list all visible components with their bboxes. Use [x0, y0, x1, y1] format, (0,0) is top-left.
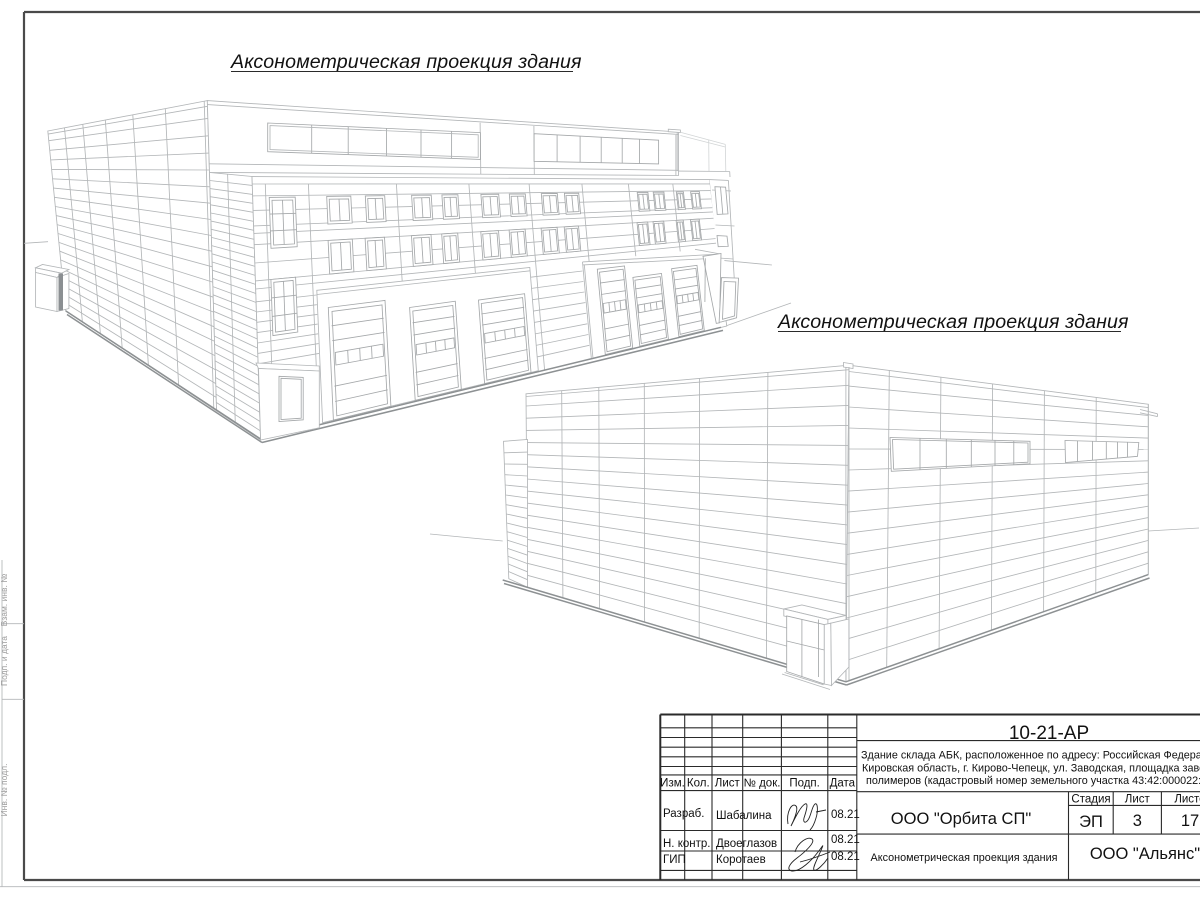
- svg-text:10-21-АР: 10-21-АР: [1009, 723, 1089, 744]
- svg-text:Аксонометрическая проекция зда: Аксонометрическая проекция здания: [871, 852, 1058, 864]
- svg-text:Разраб.: Разраб.: [663, 808, 704, 820]
- svg-text:08.21: 08.21: [831, 834, 860, 846]
- svg-text:Изм.: Изм.: [660, 778, 685, 790]
- svg-text:Стадия: Стадия: [1071, 794, 1110, 806]
- svg-text:08.21: 08.21: [831, 851, 860, 863]
- svg-text:Шабалина: Шабалина: [716, 810, 772, 822]
- svg-text:3: 3: [1133, 812, 1142, 830]
- svg-text:Дата: Дата: [830, 778, 856, 790]
- svg-text:Аксонометрическая проекция зда: Аксонометрическая проекция здания: [777, 311, 1129, 333]
- svg-text:Кол.: Кол.: [687, 778, 710, 790]
- svg-text:Лист: Лист: [1125, 794, 1151, 806]
- svg-text:Двоеглазов: Двоеглазов: [716, 838, 777, 850]
- svg-text:Подп. и дата: Подп. и дата: [0, 636, 9, 686]
- svg-text:ЭП: ЭП: [1079, 813, 1103, 831]
- svg-text:Подп.: Подп.: [789, 778, 820, 790]
- svg-text:Кировская область, г. Кирово-Ч: Кировская область, г. Кирово-Чепецк, ул.…: [862, 762, 1200, 774]
- svg-text:ГИП: ГИП: [663, 854, 686, 866]
- svg-text:ООО "Альянс": ООО "Альянс": [1090, 845, 1200, 863]
- svg-text:Коротаев: Коротаев: [716, 854, 766, 866]
- svg-text:Взам. инв. №: Взам. инв. №: [0, 574, 9, 627]
- svg-text:Аксонометрическая проекция зда: Аксонометрическая проекция здания: [230, 51, 582, 73]
- svg-text:Инв. № подл.: Инв. № подл.: [0, 764, 9, 817]
- svg-text:Лист: Лист: [715, 778, 741, 790]
- svg-text:17: 17: [1181, 812, 1199, 830]
- svg-text:Листов: Листов: [1174, 794, 1200, 806]
- svg-text:№ док.: № док.: [744, 778, 781, 790]
- svg-text:полимеров (кадастровый номер з: полимеров (кадастровый номер земельного …: [866, 775, 1200, 787]
- svg-text:08.21: 08.21: [831, 809, 860, 821]
- svg-text:ООО "Орбита СП": ООО "Орбита СП": [891, 810, 1032, 828]
- svg-text:Н. контр.: Н. контр.: [663, 838, 710, 850]
- svg-text:Здание склада АБК, расположенн: Здание склада АБК, расположенное по адре…: [861, 750, 1200, 762]
